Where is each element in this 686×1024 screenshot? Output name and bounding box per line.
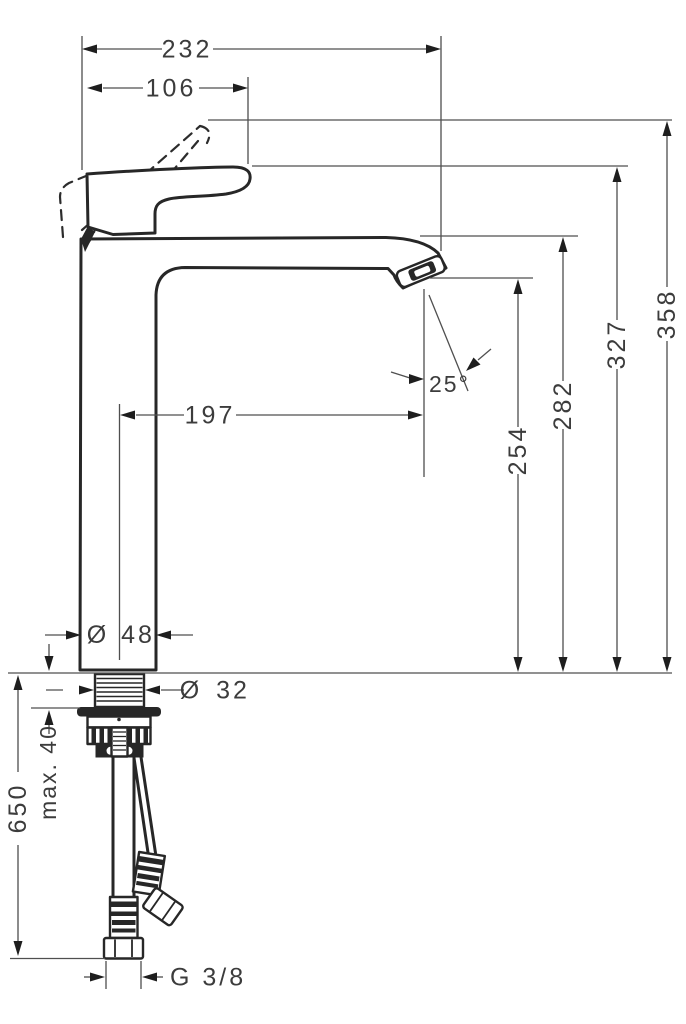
dim-connection-thread: G 3/8 — [84, 961, 246, 992]
dim-hose-length-value: 650 — [4, 783, 32, 834]
dim-shank-diameter: Ø 32 — [46, 677, 250, 705]
mounting-nut — [88, 717, 151, 758]
dim-shank-diameter-symbol: Ø — [180, 677, 202, 705]
dim-spout-reach-value: 197 — [185, 402, 236, 430]
dim-handle-width: 106 — [87, 75, 248, 165]
dim-max-mounting-thickness-value: max. 40 — [35, 724, 61, 820]
faucet-body-outline — [80, 238, 446, 671]
dim-spout-top-height: 282 — [420, 236, 578, 672]
dim-total-height-value: 358 — [653, 289, 681, 340]
base-flange — [77, 707, 161, 717]
handle-raised-tip-arc — [200, 126, 209, 143]
dim-stream-angle-value: 25° — [429, 371, 470, 397]
dim-handle-width-value: 106 — [146, 75, 197, 103]
dim-shank-diameter-value: 32 — [216, 677, 250, 705]
vertical-hose-crimp — [110, 897, 138, 938]
supply-hoses — [104, 757, 184, 959]
angled-hose-right-edge — [141, 757, 156, 853]
dim-outlet-height-value: 254 — [504, 425, 532, 476]
handle-outline — [87, 167, 250, 235]
drawing-canvas: 232 106 358 327 282 — [0, 0, 686, 1024]
faucet-body — [80, 238, 446, 671]
dim-connection-thread-value: G 3/8 — [170, 964, 246, 992]
dim-max-mounting-thickness: max. 40 — [31, 644, 80, 820]
dim-spout-reach: 197 — [120, 289, 425, 660]
faucet-dimension-drawing: 232 106 358 327 282 — [0, 0, 686, 1024]
dim-body-diameter-value: 48 — [121, 621, 155, 649]
dim-hose-length: 650 — [4, 675, 32, 956]
angled-hose-left-edge — [134, 758, 149, 856]
vertical-hose-nut — [104, 938, 143, 959]
dim-handle-height-value: 327 — [603, 319, 631, 370]
dim-total-width-value: 232 — [162, 36, 213, 64]
dim-stream-angle: 25° — [391, 295, 491, 397]
mounting-shank — [77, 674, 161, 717]
dim-body-diameter-symbol: Ø — [87, 621, 109, 649]
nut-pin — [117, 718, 121, 722]
handle-raised-base — [60, 176, 86, 237]
dim-spout-top-height-value: 282 — [549, 380, 577, 431]
threaded-rod — [112, 728, 128, 757]
